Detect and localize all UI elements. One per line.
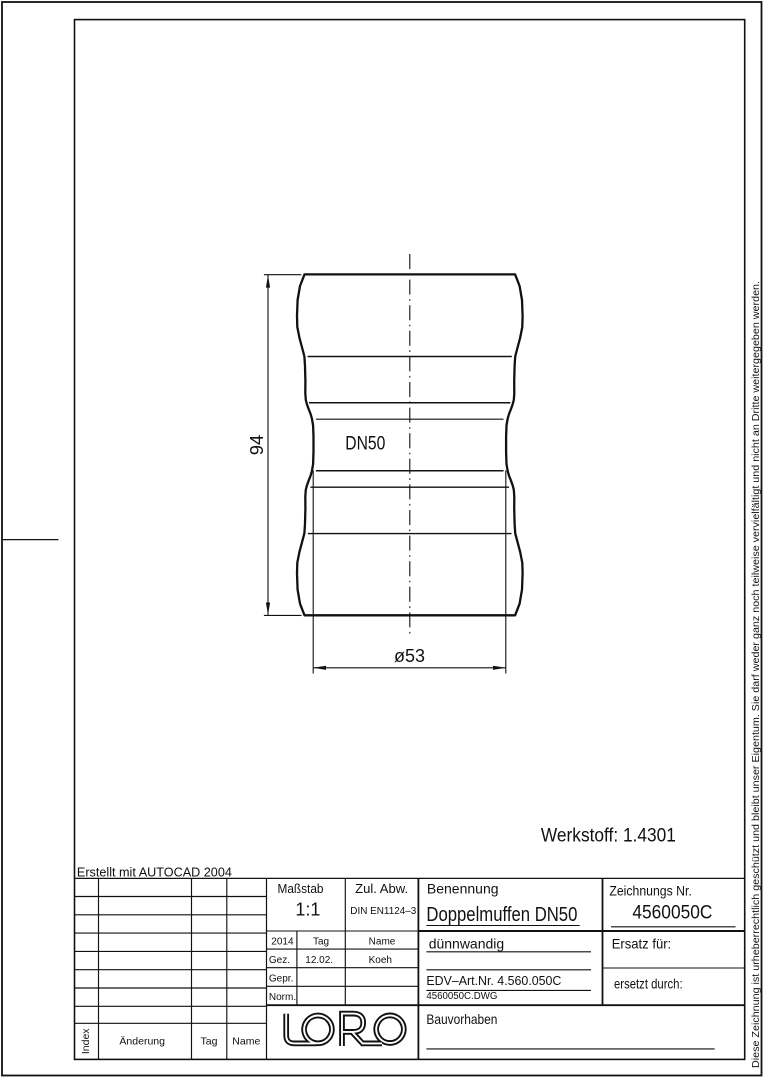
svg-text:4560050C.DWG: 4560050C.DWG: [426, 991, 497, 1002]
svg-text:Zul. Abw.: Zul. Abw.: [355, 881, 408, 896]
svg-text:Maßstab: Maßstab: [278, 881, 324, 896]
svg-text:Werkstoff: 1.4301: Werkstoff: 1.4301: [541, 825, 676, 846]
svg-text:Gez.: Gez.: [269, 955, 290, 966]
svg-text:Ersatz für:: Ersatz für:: [612, 936, 672, 952]
svg-text:Zeichnungs Nr.: Zeichnungs Nr.: [609, 883, 691, 899]
svg-text:Bauvorhaben: Bauvorhaben: [426, 1011, 497, 1027]
svg-text:1:1: 1:1: [295, 900, 320, 920]
svg-text:Tag: Tag: [313, 937, 329, 948]
svg-text:dünnwandig: dünnwandig: [429, 936, 505, 952]
svg-text:Doppelmuffen DN50: Doppelmuffen DN50: [426, 904, 577, 926]
svg-text:Name: Name: [232, 1036, 260, 1048]
svg-text:Tag: Tag: [201, 1036, 218, 1048]
svg-text:4560050C: 4560050C: [632, 903, 712, 924]
svg-text:Benennung: Benennung: [427, 881, 499, 897]
svg-text:Index: Index: [80, 1028, 92, 1054]
svg-text:DN50: DN50: [345, 433, 385, 454]
svg-text:ersetzt durch:: ersetzt durch:: [614, 976, 683, 992]
svg-text:Erstellt mit AUTOCAD 2004: Erstellt mit AUTOCAD 2004: [77, 866, 232, 880]
svg-text:Name: Name: [369, 937, 396, 948]
svg-text:12.02.: 12.02.: [305, 955, 333, 966]
svg-text:Norm.: Norm.: [269, 992, 296, 1003]
svg-text:Koeh: Koeh: [369, 955, 392, 966]
svg-text:Änderung: Änderung: [119, 1036, 165, 1048]
svg-text:2014: 2014: [271, 937, 294, 948]
svg-text:Gepr.: Gepr.: [269, 974, 293, 985]
svg-text:DIN EN1124–3: DIN EN1124–3: [350, 905, 416, 917]
svg-text:EDV–Art.Nr. 4.560.050C: EDV–Art.Nr. 4.560.050C: [426, 973, 561, 988]
svg-text:Diese Zeichnung ist urheberrec: Diese Zeichnung ist urheberrechtlich ges…: [750, 281, 762, 1068]
svg-text:ø53: ø53: [394, 645, 425, 666]
svg-text:94: 94: [246, 435, 267, 456]
